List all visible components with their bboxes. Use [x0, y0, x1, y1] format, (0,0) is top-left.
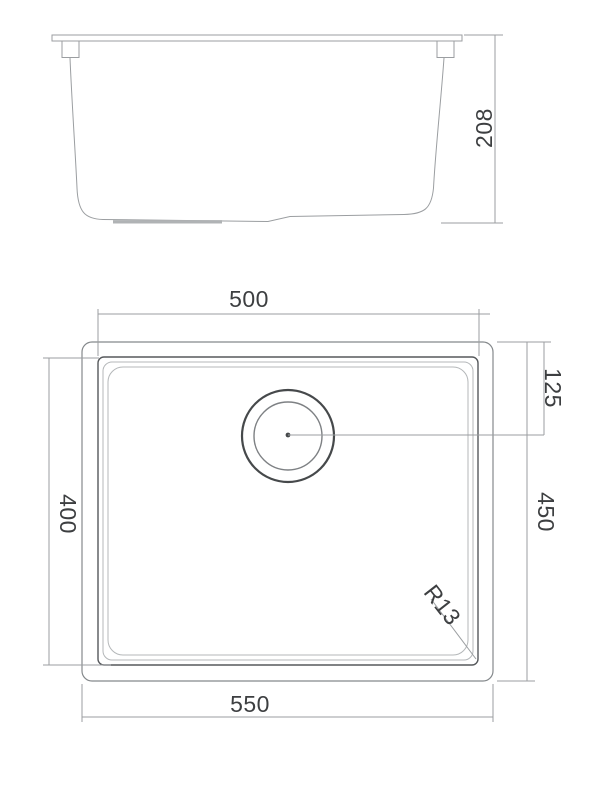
dimension-depth: 208 — [441, 35, 503, 223]
drain-offset-label: 125 — [540, 368, 566, 408]
corner-radius-callout: R13 — [419, 580, 476, 659]
sink-technical-drawing: 208 500 550 — [0, 0, 606, 800]
bowl-profile-outline — [70, 58, 444, 222]
left-clip-outline — [62, 41, 79, 58]
side-elevation-view: 208 — [52, 35, 503, 223]
bowl-top-outline — [98, 357, 478, 665]
dimension-overall-width: 550 — [82, 684, 493, 722]
bowl-length-label: 400 — [55, 494, 81, 534]
dimension-drain-offset: 125 — [540, 342, 566, 435]
bowl-width-label: 500 — [229, 286, 269, 312]
dimension-bowl-length: 400 — [43, 358, 111, 665]
corner-radius-label: R13 — [419, 580, 466, 630]
overall-width-label: 550 — [230, 691, 270, 717]
bowl-wall-line — [103, 362, 473, 660]
bowl-bottom-outline — [108, 367, 468, 655]
depth-dimension-label: 208 — [471, 108, 497, 148]
dimension-bowl-width: 500 — [98, 286, 490, 356]
outer-rim-outline — [82, 342, 493, 681]
drawing-canvas: 208 500 550 — [0, 0, 606, 800]
drain-outlet — [242, 390, 544, 482]
rim-plate-outline — [52, 35, 462, 41]
right-clip-outline — [437, 41, 454, 58]
overall-length-label: 450 — [533, 492, 559, 532]
plan-view: 500 550 400 450 125 — [43, 286, 566, 722]
